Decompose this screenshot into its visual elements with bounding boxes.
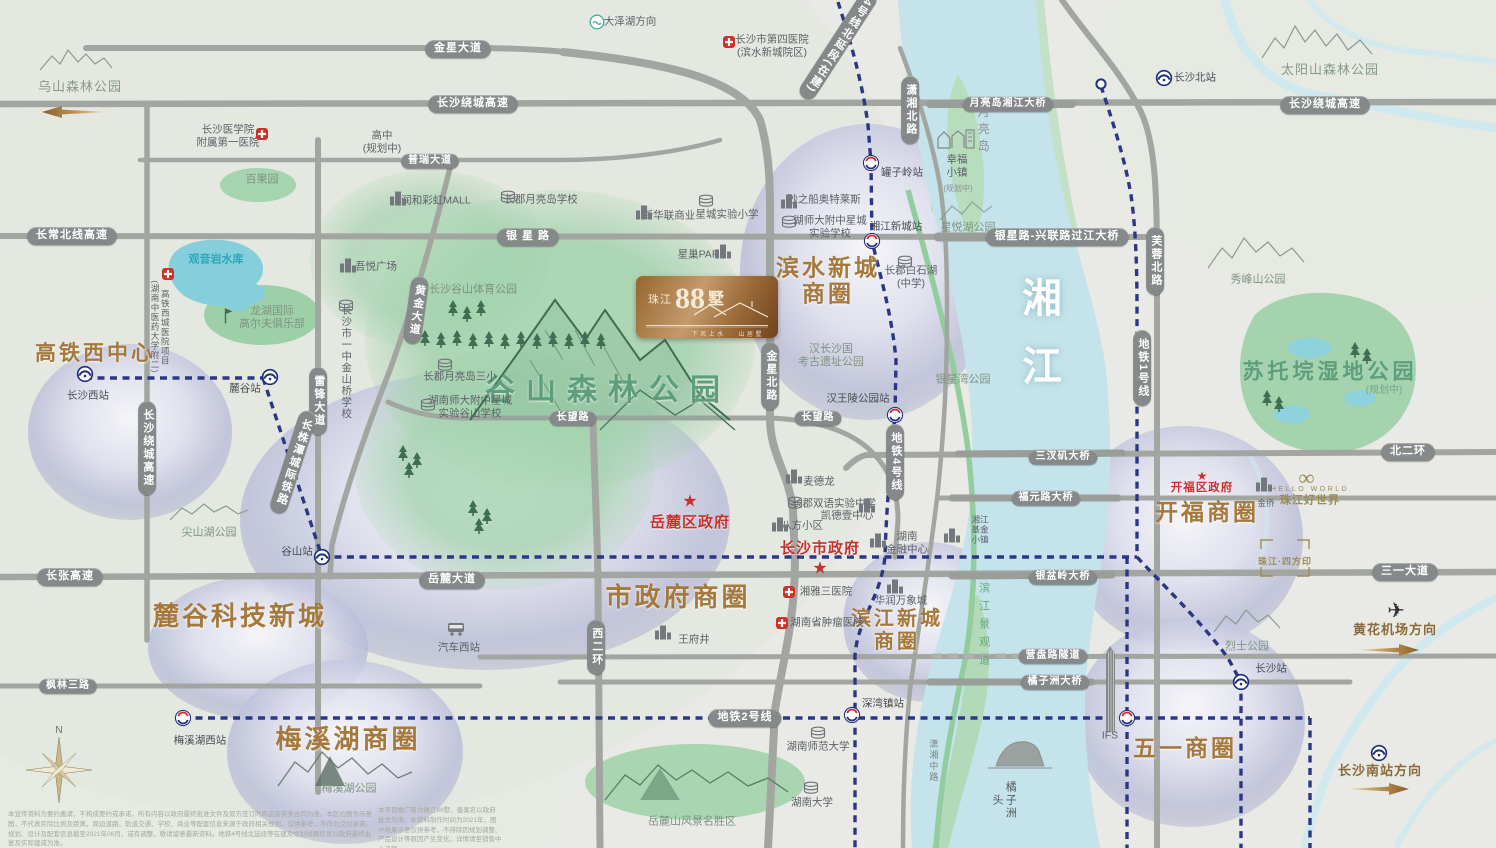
- project-logo-badge: 珠江 88 墅 下风上水 · 山居墅: [636, 276, 778, 338]
- svg-text:N: N: [55, 725, 62, 736]
- logo-roofline-icon: [694, 298, 768, 318]
- disclaimer-right: 本项目推广名为珠江88墅，备案名以政府批文为准。本资料制作时间为2021年，图中…: [378, 806, 502, 848]
- logo-tagline: 下风上水 · 山居墅: [636, 326, 778, 338]
- disclaimer-left: 本宣传资料为要约邀请，不构成要约或承诺，所有内容以政府最终批准文件及双方签订的商…: [8, 810, 374, 848]
- real-estate-location-map: N 金星大道长沙绕城高速普瑞大道长常北线高速银 星 路长望路长望路岳麓大道长张高…: [0, 0, 1496, 848]
- map-canvas: N: [0, 0, 1496, 848]
- logo-brand: 珠江: [648, 291, 672, 311]
